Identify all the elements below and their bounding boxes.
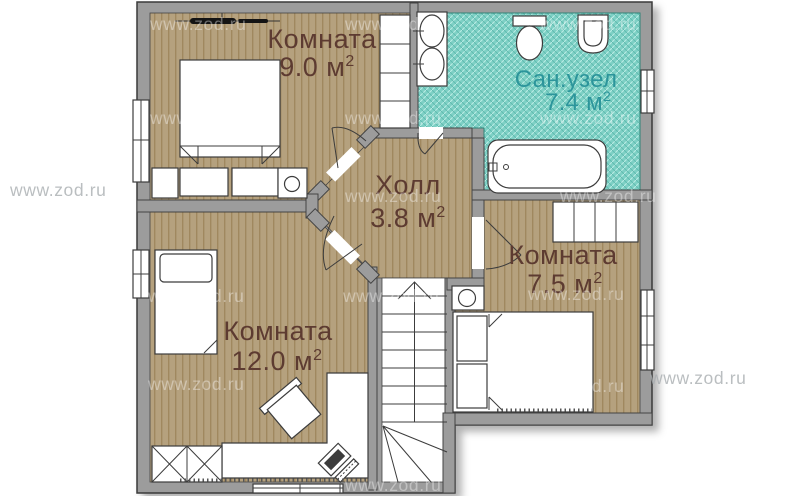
bench-icon — [232, 168, 278, 196]
watermark: www.zod.ru — [344, 108, 441, 128]
watermark: www.zod.ru — [147, 374, 244, 394]
watermark: www.zod.ru — [342, 286, 439, 306]
room-7-name-label: Комната — [508, 240, 618, 270]
watermark: www.zod.ru — [539, 14, 636, 34]
nightstand-icon — [152, 168, 178, 198]
room-12-name-label: Комната — [223, 316, 333, 346]
watermark: www.zod.ru — [149, 14, 246, 34]
wall-room7-bottom — [443, 413, 652, 425]
bench-icon — [180, 168, 228, 196]
pillow-icon — [457, 316, 487, 361]
window-room12-bottom — [253, 484, 343, 493]
floor-plan-page: Комната 9.0 м2 Сан.узел 7.4 м2 Холл 3.8 … — [0, 0, 795, 496]
watermark: www.zod.ru — [344, 14, 441, 34]
watermark: www.zod.ru — [147, 286, 244, 306]
hall-area-label: 3.8 м2 — [370, 203, 446, 233]
room-7-door-opening — [472, 217, 484, 269]
window-room9-left — [133, 100, 149, 182]
watermark: www.zod.ru — [527, 284, 624, 304]
watermark: www.zod.ru — [9, 180, 106, 200]
watermark: www.zod.ru — [539, 108, 636, 128]
x-wardrobe-icon — [152, 446, 222, 482]
watermark: www.zod.ru — [344, 186, 441, 206]
wall-room9-room12 — [137, 200, 310, 212]
lamp-icon — [459, 290, 476, 307]
window-bath-right — [641, 70, 654, 113]
window-room12-left — [133, 250, 149, 298]
watermark: www.zod.ru — [527, 376, 624, 396]
floor-plan: Комната 9.0 м2 Сан.узел 7.4 м2 Холл 3.8 … — [0, 0, 795, 496]
room-12-area-label: 12.0 м2 — [231, 346, 322, 376]
pillow-icon — [160, 254, 212, 282]
watermark: www.zod.ru — [344, 475, 441, 495]
wall-notch-vertical — [443, 413, 455, 493]
double-bed-icon — [453, 312, 593, 412]
lamp-icon — [285, 177, 300, 192]
watermark: www.zod.ru — [149, 108, 246, 128]
watermark: www.zod.ru — [649, 368, 746, 388]
pillow-icon — [457, 364, 487, 408]
watermark: www.zod.ru — [559, 186, 656, 206]
room-9-area-label: 9.0 м2 — [279, 52, 355, 82]
window-room7-right — [641, 290, 654, 370]
